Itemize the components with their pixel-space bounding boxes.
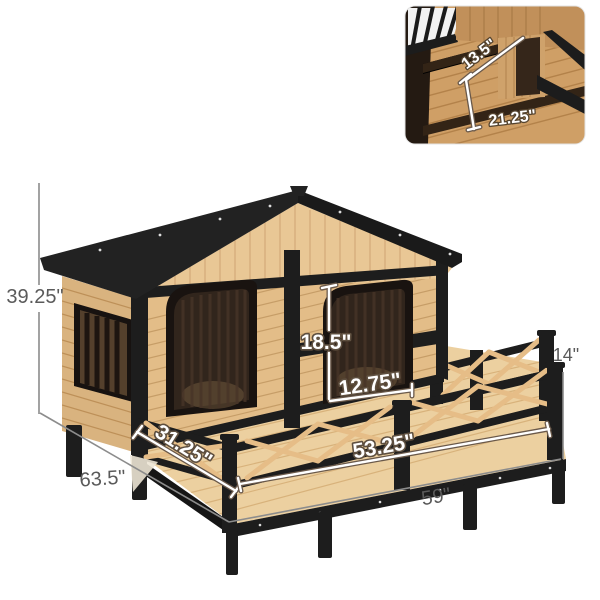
deck-leg [552,462,565,504]
dimension-label-overall-height: 39.25" [6,286,63,308]
dimension-label-door-height: 18.5" [301,331,352,354]
side-window [74,303,133,402]
product-dimension-image: 13.5" 21.25" 39.25" 63.5" 59" 14" 18.5" … [0,0,600,600]
dimension-label-overall-depth: 63.5" [79,466,126,491]
railing-post [547,366,563,460]
center-post [284,250,300,428]
deck-leg [463,484,477,530]
left-door [166,280,257,417]
dimension-label-railing-height: 14" [553,345,579,365]
dimension-label-overall-width: 59" [420,484,452,510]
dog-house-diagram: 13.5" 21.25" 39.25" 63.5" 59" 14" 18.5" … [0,0,600,600]
deck-leg [318,512,332,558]
inset-doorway [516,37,540,96]
inset-interior-photo: 13.5" 21.25" [405,6,585,155]
